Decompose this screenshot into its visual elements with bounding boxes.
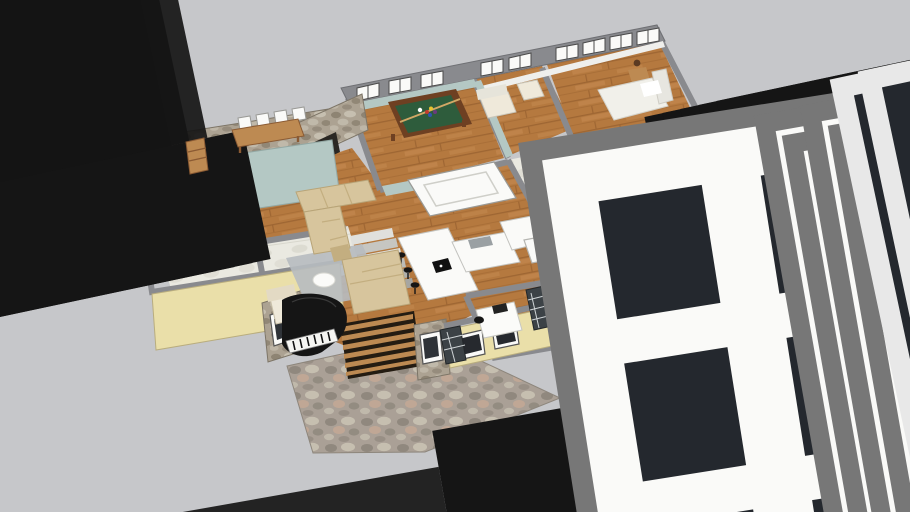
- table-leg: [391, 134, 395, 141]
- bar-stool: [404, 267, 413, 273]
- sectional-sofa-bottom: [342, 250, 410, 314]
- bay-window-glass: [423, 336, 439, 359]
- billiard-ball: [425, 110, 429, 114]
- billiard-ball: [433, 110, 437, 114]
- cooktop-knob: [440, 265, 443, 268]
- desk-chair: [474, 316, 484, 323]
- billiard-ball: [429, 107, 433, 111]
- table-leg: [462, 120, 466, 127]
- deck-shelf: [186, 138, 208, 174]
- bar-stool: [411, 282, 420, 288]
- lamp: [634, 60, 641, 67]
- round-coffee-table: [313, 273, 335, 287]
- billiard-ball: [428, 113, 432, 117]
- floor-plan-stage: [0, 0, 910, 512]
- outdoor-chair: [292, 107, 306, 121]
- floor-plan-canvas: [0, 0, 910, 512]
- cue-ball: [418, 108, 422, 112]
